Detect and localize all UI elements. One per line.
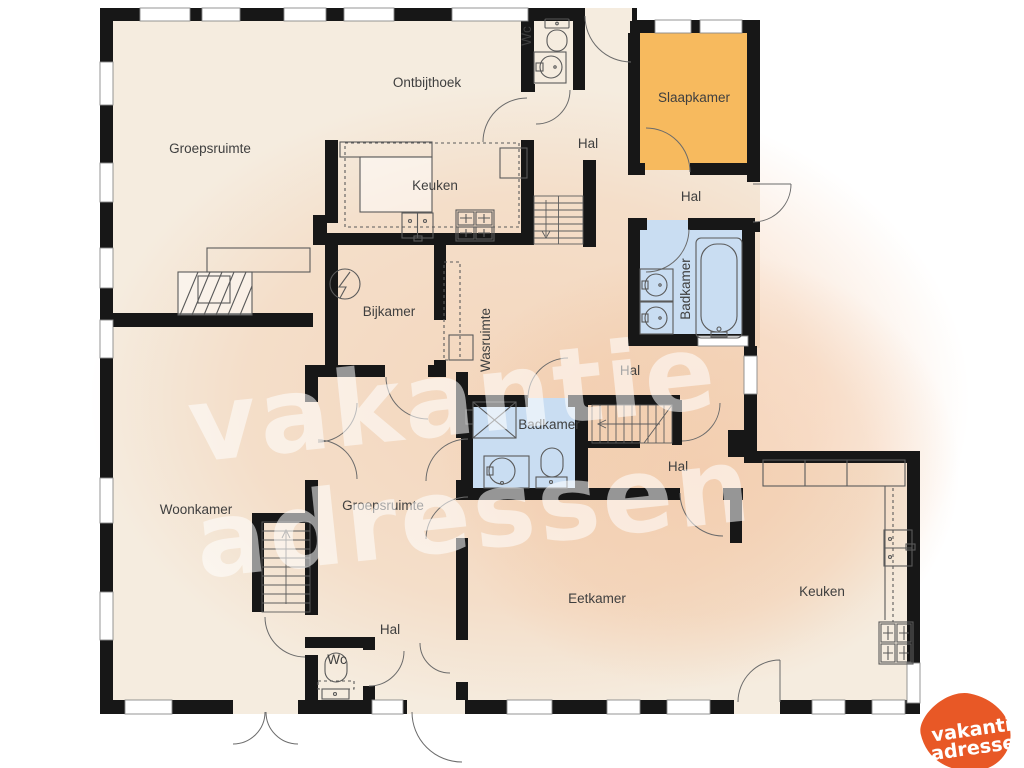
vakantieadressen-logo: vakantie adressen: [920, 693, 1024, 768]
room-label-hal-boven: Hal: [578, 136, 598, 151]
room-label-wc-beneden: Wc: [327, 652, 347, 667]
room-label-hal-rechtsboven: Hal: [681, 189, 701, 204]
room-label-slaapkamer: Slaapkamer: [658, 90, 731, 105]
room-label-hal-beneden: Hal: [380, 622, 400, 637]
floorplan-page: Ontbijthoek Groepsruimte Keuken Wc Hal S…: [0, 0, 1024, 768]
room-label-bijkamer: Bijkamer: [363, 304, 416, 319]
room-label-keuken-boven: Keuken: [412, 178, 458, 193]
room-label-wc-boven: Wc: [519, 26, 534, 46]
room-label-groepsruimte-boven: Groepsruimte: [169, 141, 251, 156]
room-label-keuken-beneden: Keuken: [799, 584, 845, 599]
room-label-eetkamer: Eetkamer: [568, 591, 626, 606]
floorplan-svg: Ontbijthoek Groepsruimte Keuken Wc Hal S…: [0, 0, 1024, 768]
room-label-badkamer-rechts: Badkamer: [678, 258, 693, 320]
room-label-ontbijthoek: Ontbijthoek: [393, 75, 462, 90]
